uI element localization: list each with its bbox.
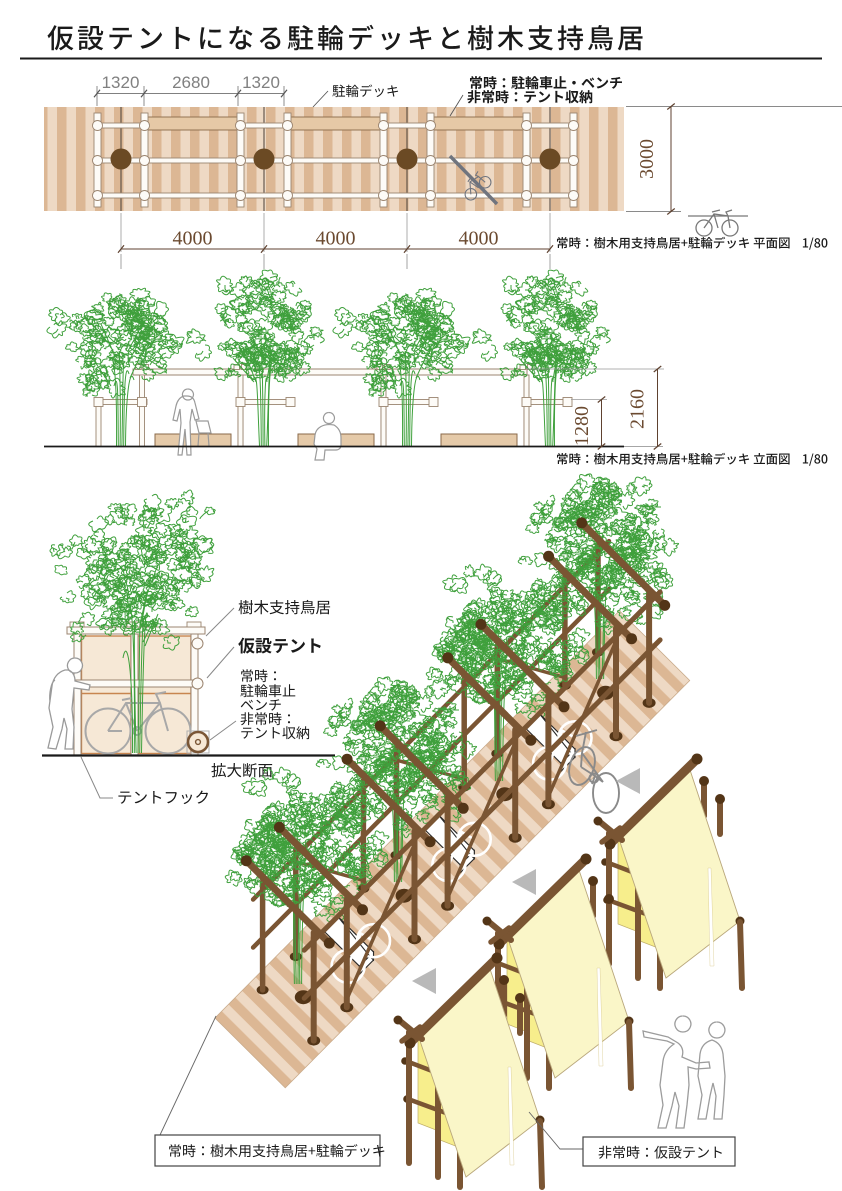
svg-text:1320: 1320: [102, 73, 140, 92]
svg-text:2160: 2160: [627, 389, 649, 429]
svg-text:4000: 4000: [459, 228, 499, 250]
svg-text:4000: 4000: [316, 228, 356, 250]
svg-text:4000: 4000: [173, 228, 213, 250]
svg-text:3000: 3000: [636, 139, 658, 179]
svg-text:2680: 2680: [172, 73, 210, 92]
svg-text:1280: 1280: [571, 406, 593, 446]
svg-text:1320: 1320: [242, 73, 280, 92]
